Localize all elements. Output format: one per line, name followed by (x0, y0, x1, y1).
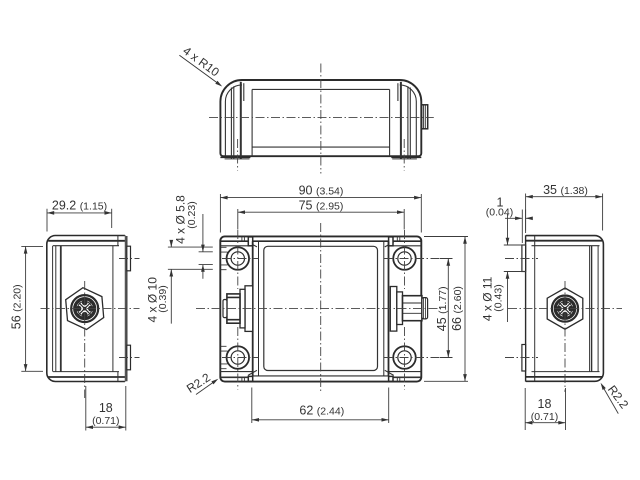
svg-text:75 (2.95): 75 (2.95) (299, 198, 344, 212)
svg-text:(0.71): (0.71) (531, 411, 558, 423)
svg-text:(0.43): (0.43) (492, 284, 504, 311)
svg-text:18: 18 (99, 401, 113, 415)
svg-text:45 (1.77): 45 (1.77) (435, 286, 449, 331)
svg-text:90 (3.54): 90 (3.54) (299, 184, 344, 198)
svg-text:(0.04): (0.04) (486, 206, 513, 218)
svg-text:(0.71): (0.71) (92, 415, 119, 427)
svg-text:18: 18 (538, 397, 552, 411)
svg-text:35 (1.38): 35 (1.38) (543, 183, 588, 197)
svg-text:(0.39): (0.39) (157, 285, 169, 312)
svg-text:(0.23): (0.23) (186, 201, 198, 228)
svg-text:62 (2.44): 62 (2.44) (299, 404, 344, 418)
svg-text:66 (2.60): 66 (2.60) (450, 286, 464, 331)
svg-text:29.2 (1.15): 29.2 (1.15) (52, 199, 107, 213)
svg-text:56 (2.20): 56 (2.20) (9, 284, 23, 329)
